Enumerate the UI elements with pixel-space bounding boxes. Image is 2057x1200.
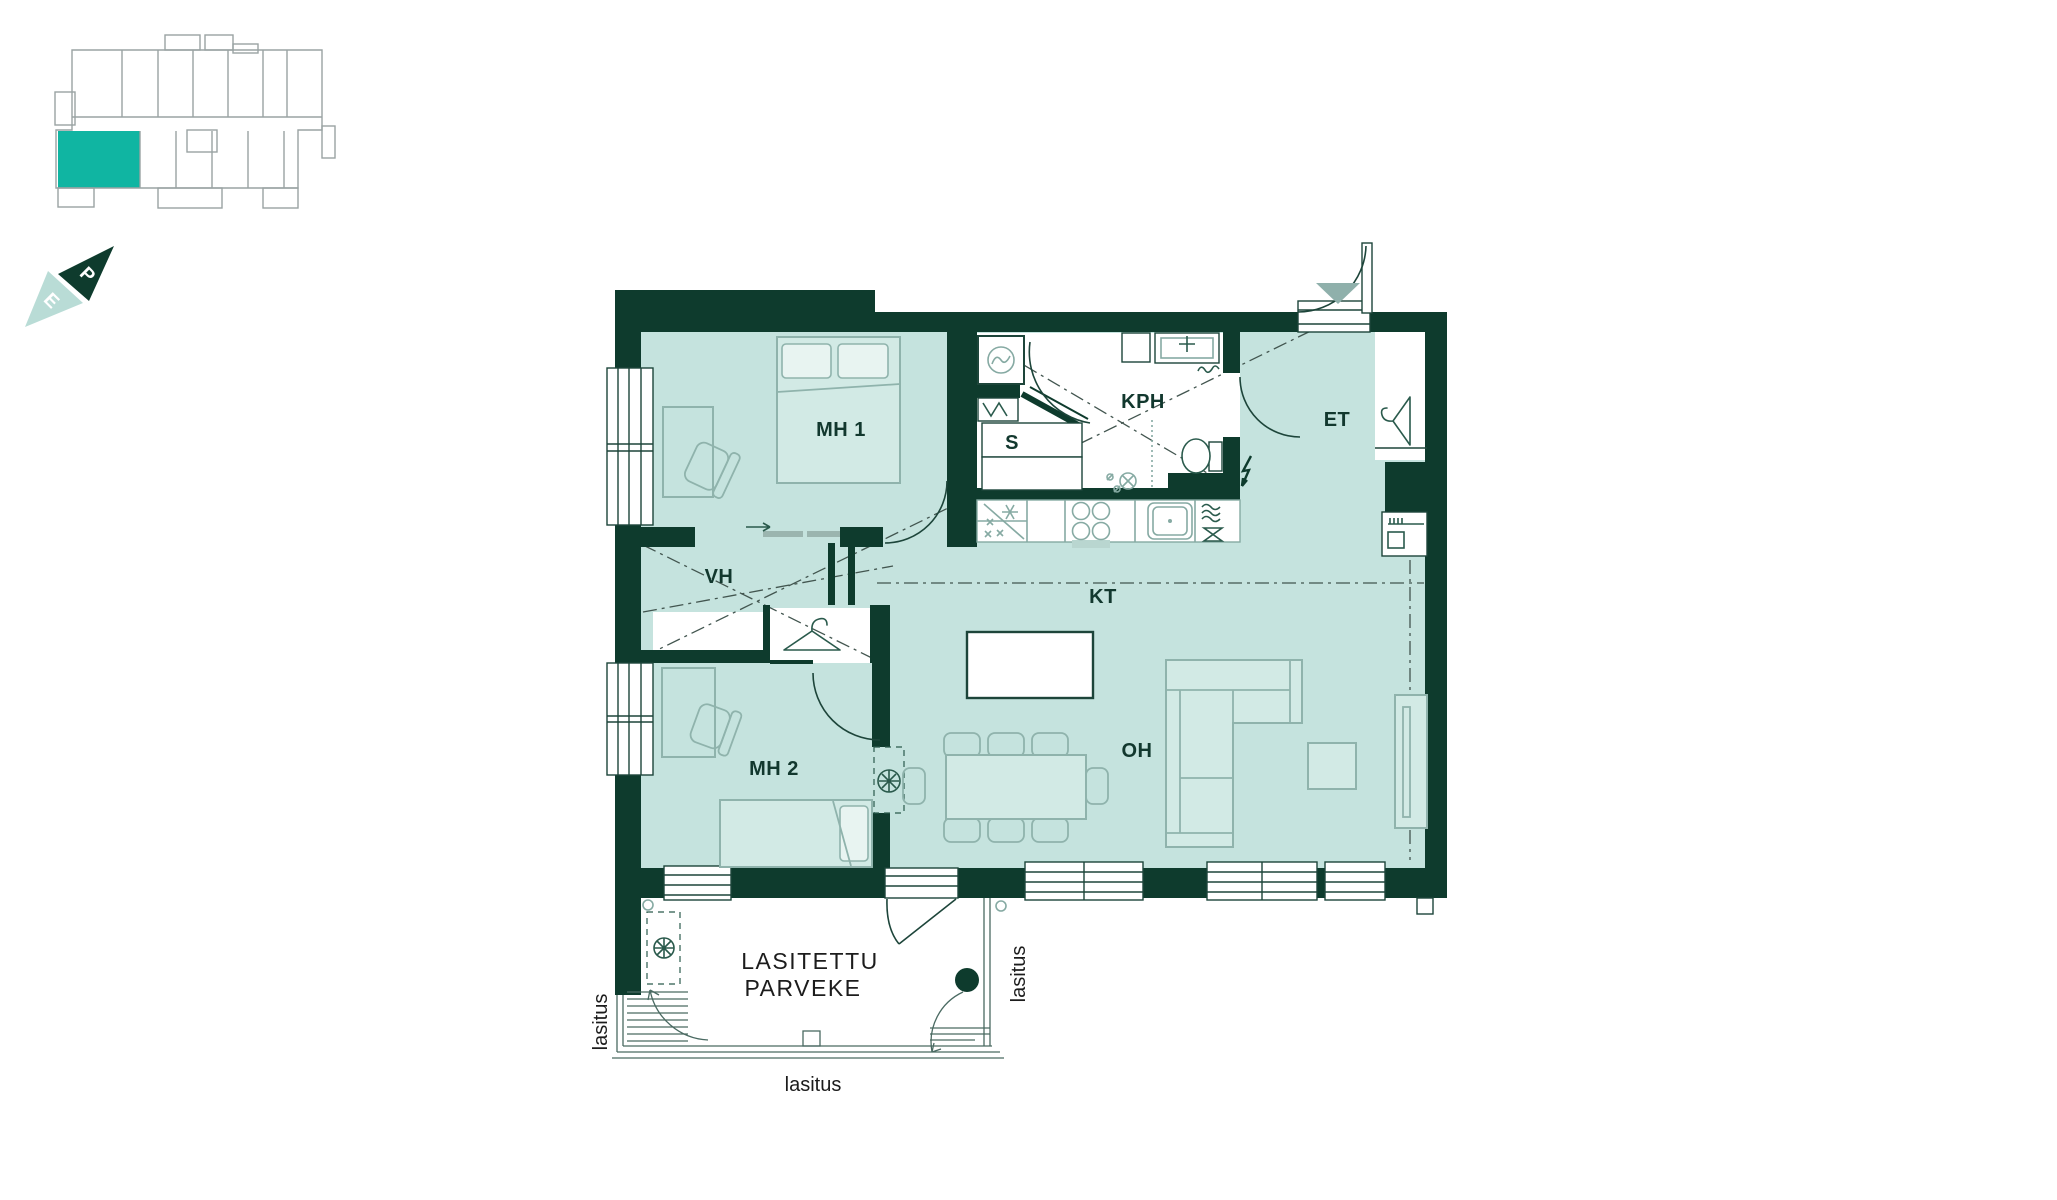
lasitus-label-right: lasitus [1008, 946, 1030, 1003]
window-icon-mh2-south [664, 866, 731, 900]
room-label-kt: KT [1089, 586, 1117, 608]
glazing-opening-arc [930, 992, 990, 1052]
wall-mh2-east-upper [872, 663, 890, 747]
kitchen-counter [977, 500, 1240, 548]
sauna-stove-icon [978, 398, 1018, 421]
wall-closet-divider [763, 605, 770, 663]
lasitus-label-bottom: lasitus [785, 1074, 842, 1096]
floor-plan-page: P E [0, 0, 2057, 1200]
window-icon-oh-2 [1207, 862, 1317, 900]
room-label-sauna: S [1005, 432, 1019, 454]
escape-hatch-arc [648, 990, 708, 1040]
drain-pipe-icon-right [996, 901, 1006, 911]
compass-icon: P E [25, 246, 114, 327]
toilet-icon [1182, 439, 1222, 473]
balcony-door [885, 868, 958, 944]
double-bed-icon [777, 337, 900, 483]
kitchen-island [967, 632, 1093, 698]
apartment-floor-plan: MH 1 KPH S ET VH KT MH 2 OH LASITETTU PA… [590, 243, 1447, 1096]
bathroom-cabinet [1122, 333, 1150, 362]
window-icon-oh-1 [1025, 862, 1143, 900]
wall-mh1-kph [947, 312, 977, 547]
room-label-mh1: MH 1 [816, 419, 866, 441]
balcony-door-leaf [899, 899, 956, 944]
hall-door-post-b [848, 543, 855, 605]
dining-table-icon [946, 755, 1086, 819]
wall-mh2-north [641, 650, 763, 663]
washbasin-icon [1155, 333, 1219, 363]
washing-machine-icon [978, 336, 1024, 384]
wall-closet-kt [870, 605, 890, 663]
window-icon-mh2 [607, 663, 653, 775]
kph-door-opening [1223, 373, 1240, 437]
entry-closet [1375, 332, 1427, 460]
glazing-latch [803, 1031, 820, 1046]
window-icon-oh-3 [1325, 862, 1385, 900]
wall-mh2-east-lower [872, 813, 890, 868]
room-label-oh: OH [1122, 740, 1153, 762]
wall-top-left [615, 290, 875, 332]
wall-mh1-south-b [840, 527, 883, 547]
balcony-title-line1: LASITETTU [741, 948, 878, 974]
coffee-table-icon [1308, 743, 1356, 789]
duct-shaft [1385, 462, 1427, 512]
minimap-highlighted-unit [58, 131, 140, 188]
glazing-line-right [984, 898, 990, 1046]
building-overview-map [55, 35, 335, 208]
window-icon-mh1 [607, 368, 653, 525]
drain-pipe-icon-left [643, 900, 653, 910]
balcony-flue-icon [647, 912, 680, 984]
room-label-kph: KPH [1121, 391, 1165, 413]
wall-mh1-south-a [641, 527, 695, 547]
balcony-title-line2: PARVEKE [744, 975, 861, 1001]
room-label-et: ET [1324, 409, 1351, 431]
room-label-vh: VH [705, 566, 734, 588]
wall-sauna-nook [976, 385, 1020, 398]
balcony-bench-hatch [627, 992, 688, 1041]
balcony-door-arc [887, 899, 899, 944]
room-label-mh2: MH 2 [749, 758, 799, 780]
wall-right [1425, 312, 1447, 898]
minimap-unit-dividers [122, 50, 287, 188]
balcony-column [955, 968, 979, 992]
wall-wc-stub [1168, 473, 1223, 493]
vh-wardrobe-cabinet [653, 612, 763, 655]
tv-bench-icon [1395, 695, 1427, 828]
single-bed-icon [720, 800, 872, 867]
balcony-labels: LASITETTU PARVEKE lasitus lasitus lasitu… [590, 946, 1030, 1096]
entry-door-leaf [1362, 243, 1372, 313]
facade-stub [1417, 898, 1433, 914]
floor-plan-canvas: P E [0, 0, 2057, 1200]
lasitus-label-left: lasitus [590, 994, 612, 1051]
sauna-benches [982, 423, 1082, 490]
hall-door-post-a [828, 543, 835, 605]
entry-door [1298, 243, 1372, 332]
electrical-panel-icon [1382, 512, 1427, 556]
